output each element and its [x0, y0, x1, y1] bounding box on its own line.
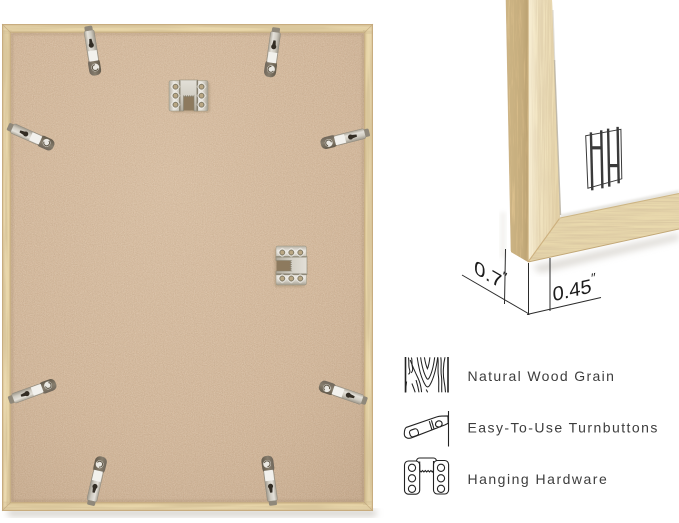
- svg-text:Natural Wood Grain: Natural Wood Grain: [468, 368, 616, 384]
- svg-text:Hanging Hardware: Hanging Hardware: [468, 471, 609, 487]
- svg-text:Easy-To-Use Turnbuttons: Easy-To-Use Turnbuttons: [468, 419, 659, 435]
